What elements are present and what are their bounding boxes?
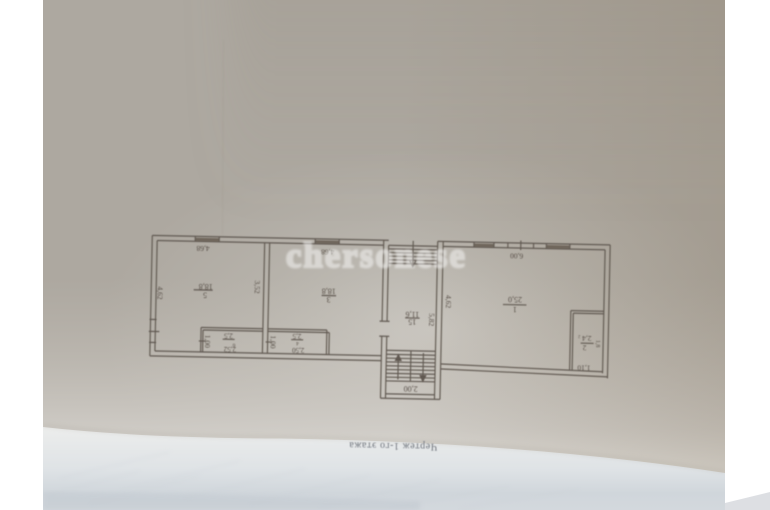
svg-text:2: 2 — [578, 334, 580, 339]
svg-text:3: 3 — [327, 295, 331, 304]
svg-text:2,5: 2,5 — [292, 332, 301, 340]
svg-text:1,00: 1,00 — [269, 335, 278, 349]
svg-text:1,10: 1,10 — [577, 363, 591, 372]
svg-text:2,52: 2,52 — [223, 345, 236, 353]
svg-text:5: 5 — [203, 290, 207, 299]
svg-text:Чертеж 1-го этажа: Чертеж 1-го этажа — [349, 439, 438, 452]
svg-text:2,00: 2,00 — [404, 384, 418, 393]
svg-text:2,4: 2,4 — [582, 334, 592, 343]
svg-text:6,00: 6,00 — [510, 251, 524, 260]
svg-text:25,0: 25,0 — [508, 295, 522, 304]
svg-text:18,8: 18,8 — [322, 286, 336, 295]
svg-text:1,8: 1,8 — [594, 340, 600, 348]
svg-text:5,82: 5,82 — [427, 313, 436, 327]
svg-text:2: 2 — [582, 343, 586, 352]
svg-text:4,62: 4,62 — [155, 286, 164, 300]
svg-text:4,68: 4,68 — [196, 244, 210, 253]
svg-text:4,62: 4,62 — [444, 295, 453, 309]
svg-text:1,00: 1,00 — [203, 335, 212, 349]
svg-text:2,5: 2,5 — [223, 332, 232, 340]
svg-text:4: 4 — [296, 340, 299, 346]
svg-text:3,52: 3,52 — [252, 280, 261, 294]
svg-text:2,50: 2,50 — [292, 346, 305, 354]
svg-text:chersonese: chersonese — [286, 237, 467, 275]
svg-text:1: 1 — [513, 305, 517, 314]
